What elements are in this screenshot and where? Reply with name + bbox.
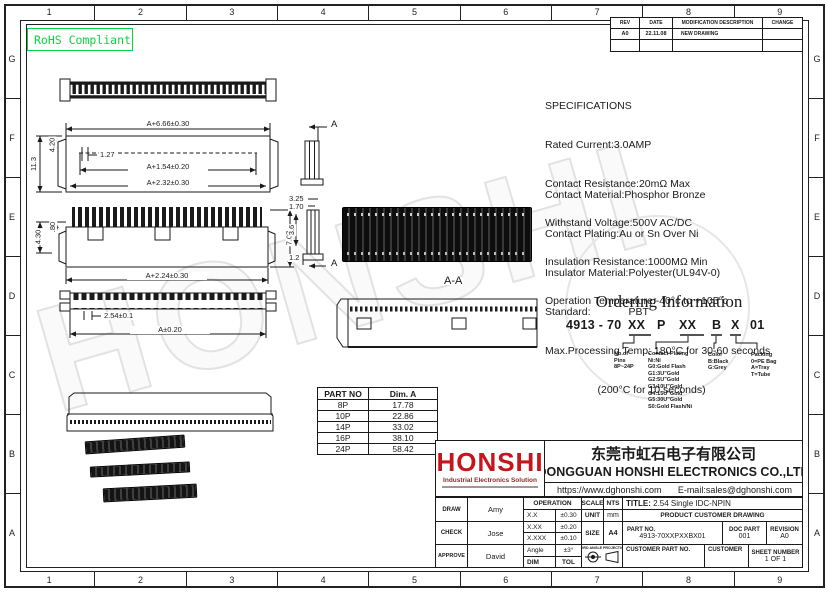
grid-col-label: 7 <box>551 572 642 588</box>
section-arrow-label-top: A <box>330 121 338 129</box>
grid-col-label: 1 <box>4 572 94 588</box>
grid-row-label: D <box>4 256 20 335</box>
grid-row-label: G <box>4 20 20 98</box>
dim-a-232: A+2.32±0.30 <box>128 179 208 187</box>
legend-line: Packing <box>751 352 777 359</box>
specifications-title: SPECIFICATIONS <box>545 100 728 113</box>
sheet-number-value: 1 OF 1 <box>765 556 786 563</box>
grid-col-label: 4 <box>277 4 368 20</box>
legend-line: Contact Plating <box>648 351 692 358</box>
legend-line: G4:15U"Gold <box>648 391 692 398</box>
honshi-logo: HONSHI <box>436 449 543 475</box>
company-cell: 东莞市虹石电子有限公司 DONGGUAN HONSHI ELECTRONICS … <box>544 440 803 497</box>
revision-cell: REVISION A0 <box>766 521 803 545</box>
approve-label: APPROVE <box>435 544 468 568</box>
grid-row-label: F <box>4 98 20 177</box>
grid-row-label: C <box>4 335 20 414</box>
dim-12: 1.2 <box>288 254 300 262</box>
company-name-en: DONGGUAN HONSHI ELECTRONICS CO.,LTD <box>544 465 803 479</box>
legend-line: A=Tray <box>751 365 777 372</box>
dim-a-020: A±0.20 <box>130 326 210 334</box>
legend-line: No.of <box>614 351 634 358</box>
size-label: SIZE <box>581 521 604 545</box>
grid-row-label: B <box>809 414 825 493</box>
modification-empty <box>672 39 763 52</box>
doc-part-value: 001 <box>739 533 751 540</box>
legend-line: G0:Gold Flash <box>648 364 692 371</box>
size-value: A4 <box>603 521 623 545</box>
part-no-value: 4913-70XXPXXBX01 <box>639 533 705 540</box>
grid-row-label: D <box>809 256 825 335</box>
grid-col-label: 6 <box>460 4 551 20</box>
grid-col-label: 2 <box>94 572 185 588</box>
legend-line: Pins <box>614 358 634 365</box>
dim-height-4-20: 4.20 <box>48 137 56 154</box>
change-empty <box>762 39 803 52</box>
ordering-code-packing: X <box>731 318 740 332</box>
date-empty <box>639 39 673 52</box>
grid-col-label: 3 <box>186 4 277 20</box>
legend-line: 8P~24P <box>614 364 634 371</box>
logo-underline <box>442 486 538 488</box>
legend-line: G:Grey <box>708 365 728 372</box>
company-email: E-mail:sales@dghonshi.com <box>678 485 792 495</box>
connector-photo <box>342 207 532 262</box>
spec-line: Rated Current:3.0AMP <box>545 139 728 152</box>
sheet-number-cell: SHEET NUMBER 1 OF 1 <box>748 544 803 568</box>
third-angle-projection-icon <box>584 550 620 564</box>
contact-row-top <box>347 213 527 216</box>
grid-row-label: A <box>4 493 20 572</box>
title-label: TITLE: <box>626 499 651 508</box>
customer-cell: CUSTOMER <box>704 544 749 568</box>
ordering-code-suffix: 01 <box>750 318 765 332</box>
grid-ref-left: G F E D C B A <box>4 20 20 572</box>
legend-packing: Packing 0=PE Bag A=Tray T=Tube <box>751 352 777 378</box>
dim-080: .80 <box>49 221 57 233</box>
grid-row-label: A <box>809 493 825 572</box>
dim-a-224: A+2.24±0.30 <box>127 272 207 280</box>
dim-pitch-1-27: 1.27 <box>99 151 116 159</box>
grid-col-label: 9 <box>734 572 825 588</box>
table-cell: 58.42 <box>368 443 438 455</box>
ordering-code-p: P <box>657 318 666 332</box>
legend-line: T=Tube <box>751 372 777 379</box>
contact-row-bottom <box>347 252 527 255</box>
rohs-label: RoHS Compliant <box>34 33 131 47</box>
contact-row: https://www.dghonshi.com E-mail:sales@dg… <box>545 482 802 495</box>
grid-ref-right: G F E D C B A <box>809 20 825 572</box>
grid-col-label: 6 <box>460 572 551 588</box>
legend-color: Color B:Black G:Grey <box>708 352 728 372</box>
grid-row-label: C <box>809 335 825 414</box>
dim-170: 1.70 <box>288 203 305 211</box>
dim-height-11-3: 11.3 <box>30 156 38 172</box>
grid-row-label: E <box>4 177 20 256</box>
legend-line: 0=PE Bag <box>751 359 777 366</box>
company-website: https://www.dghonshi.com <box>557 485 662 495</box>
logo-tagline: Industrial Electronics Solution <box>443 477 537 484</box>
table-cell: 24P <box>317 443 369 455</box>
grid-col-label: 3 <box>186 572 277 588</box>
rohs-compliant-badge: RoHS Compliant <box>27 28 133 51</box>
spec-line: Insulator Material:Polyester(UL94V-0) <box>545 267 770 280</box>
rev-empty <box>610 39 640 52</box>
title-value: 2.54 Single IDC-NPIN <box>653 499 731 508</box>
legend-line: G3:10U"Gold <box>648 384 692 391</box>
grid-ref-bottom: 1 2 3 4 5 6 7 8 9 <box>4 572 825 588</box>
draw-name: Amy <box>467 497 524 522</box>
ordering-code-base: 4913 - 70 <box>566 318 622 332</box>
legend-line: Color <box>708 352 728 359</box>
ordering-code-plating: XX <box>679 318 696 332</box>
part-no-cell: PART NO. 4913-70XXPXXBX01 <box>622 521 723 545</box>
grid-row-label: F <box>809 98 825 177</box>
ordering-title: Ordering Information <box>588 292 750 312</box>
approve-name: David <box>467 544 524 568</box>
section-arrow-label-bottom: A <box>330 260 338 268</box>
ordering-code-pins: XX <box>628 318 645 332</box>
legend-line: G1:3U"Gold <box>648 371 692 378</box>
section-aa-label: A-A <box>443 277 463 285</box>
legend-pins: No.of Pins 8P~24P <box>614 351 634 371</box>
draw-label: DRAW <box>435 497 468 522</box>
grid-row-label: G <box>809 20 825 98</box>
legend-plating: Contact Plating Ni:Ni G0:Gold Flash G1:3… <box>648 351 692 410</box>
grid-row-label: E <box>809 177 825 256</box>
dim-430: 4.30 <box>34 229 42 246</box>
ordering-code-color: B <box>712 318 721 332</box>
company-name-cn: 东莞市虹石电子有限公司 <box>591 443 756 464</box>
grid-col-label: 4 <box>277 572 368 588</box>
dim-label: DIM <box>523 556 556 568</box>
grid-col-label: 2 <box>94 4 185 20</box>
projection-cell: THIRD ANGLE PROJECTION <box>581 544 623 568</box>
logo-cell: HONSHI Industrial Electronics Solution <box>435 440 545 497</box>
dim-36: 3.6 <box>288 224 296 236</box>
legend-line: Ni:Ni <box>648 358 692 365</box>
legend-line: S0:Gold Flash/Ni <box>648 404 692 411</box>
check-name: Jose <box>467 521 524 545</box>
check-label: CHECK <box>435 521 468 545</box>
grid-col-label: 5 <box>368 4 459 20</box>
grid-col-label: 5 <box>368 572 459 588</box>
dim-pitch-254: 2.54±0.1 <box>103 312 134 320</box>
legend-line: G5:30U"Gold <box>648 397 692 404</box>
dim-overall-top: A+6.66±0.30 <box>128 120 208 128</box>
revision-value: A0 <box>780 533 789 540</box>
doc-part-cell: DOC PART 001 <box>722 521 767 545</box>
grid-col-label: 8 <box>642 572 733 588</box>
dim-a-154: A+1.54±0.20 <box>128 163 208 171</box>
engineering-drawing-sheet: HONSHI 1 2 3 4 5 6 7 8 9 1 2 3 4 5 6 7 8… <box>0 0 829 592</box>
grid-col-label: 1 <box>4 4 94 20</box>
customer-part-no-cell: CUSTOMER PART NO. <box>622 544 705 568</box>
grid-row-label: B <box>4 414 20 493</box>
legend-line: B:Black <box>708 359 728 366</box>
legend-line: G2:5U"Gold <box>648 377 692 384</box>
spec-line: Contact Plating:Au or Sn Over Ni <box>545 228 770 241</box>
spec-line: Contact Material:Phosphor Bronze <box>545 189 770 202</box>
tol-header: TOL <box>555 556 582 568</box>
